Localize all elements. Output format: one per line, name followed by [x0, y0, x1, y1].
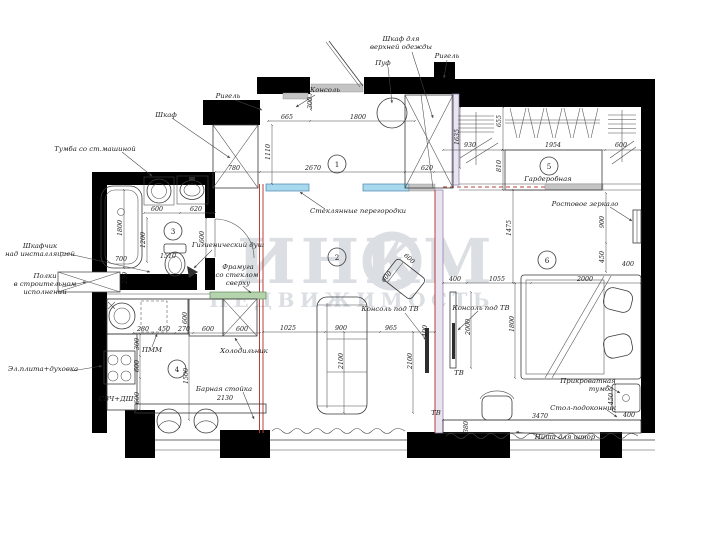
dim: 1055	[489, 276, 505, 283]
curtain-line-living	[272, 429, 405, 434]
label-tv-bedroom: ТВ	[454, 369, 464, 377]
dim: 900	[599, 216, 606, 228]
dim: 600	[615, 142, 627, 149]
dim: 810	[496, 160, 503, 172]
dim: 300	[134, 338, 141, 350]
label-bedside-line1: Прикроватная	[559, 377, 616, 385]
windowsill-desk	[443, 420, 641, 433]
tv-bedroom	[452, 323, 455, 359]
hall-closet-left	[213, 125, 258, 188]
dim: 230	[122, 272, 129, 285]
label-outerwear-closet-line1: Шкаф для	[382, 35, 420, 43]
label-transom-line1: Фрамуга	[222, 263, 254, 271]
dim: 400	[448, 276, 461, 283]
dim: 450	[157, 326, 170, 333]
room-number-5: 5	[540, 157, 558, 175]
glass-partition-right	[363, 184, 409, 191]
dim: 270	[177, 326, 190, 333]
floor-plan-page: ИНК М НЕДВИЖИМОСТЬ	[0, 0, 701, 540]
dim: 1800	[350, 114, 366, 121]
full-length-mirror	[633, 210, 641, 243]
label-rigel-left: Ригель	[215, 92, 241, 100]
dim: 1475	[506, 220, 513, 236]
label-wardrobe-room: Гардеробная	[523, 175, 572, 183]
label-shelves-line3: исполнении	[23, 288, 66, 296]
dim: 1200	[140, 232, 147, 248]
dim: 1025	[280, 325, 296, 332]
dim: 1500	[183, 368, 190, 384]
label-transom-line2: со стеклом	[215, 271, 258, 279]
dim: 2100	[407, 353, 414, 370]
label-shelves-line2: в строительном	[14, 280, 77, 288]
dim: 700	[115, 256, 127, 263]
bathroom-nook-wall	[107, 292, 266, 299]
dim: 930	[464, 142, 476, 149]
room-number-3: 3	[164, 222, 182, 240]
doorway-sill	[409, 184, 435, 191]
label-pouf: Пуф	[374, 59, 391, 67]
dim: 600	[151, 206, 163, 213]
dim: 400	[422, 325, 429, 338]
dim: 380	[463, 421, 470, 433]
dim: 1110	[265, 144, 272, 160]
dim: 655	[496, 115, 503, 127]
outerwear-closet	[405, 95, 453, 188]
pillow	[602, 332, 634, 359]
dim: 2000	[576, 276, 593, 283]
dim: 900	[335, 325, 347, 332]
svg-text:6: 6	[545, 256, 550, 265]
svg-text:5: 5	[547, 162, 552, 171]
dim: 3470	[532, 413, 548, 420]
bedside-table	[612, 384, 640, 412]
dim: 600	[134, 392, 141, 404]
dim: 450	[599, 251, 606, 264]
dim: 1510	[160, 253, 176, 260]
label-wallcabinet-line1: Шкафчик	[22, 242, 58, 250]
floor-plan-drawing: ИНК М НЕДВИЖИМОСТЬ	[0, 0, 701, 540]
dim: 780	[228, 165, 240, 172]
label-bedside-line2: тумба	[589, 385, 614, 393]
room-number-6: 6	[538, 251, 556, 269]
label-tv-console-living: Консоль под ТВ	[360, 305, 418, 313]
label-rigel-right: Ригель	[434, 52, 460, 60]
dim: 620	[190, 206, 202, 213]
label-glass-partitions: Стеклянные перегородки	[310, 207, 406, 215]
dim: 2130	[216, 395, 233, 402]
label-outerwear-closet-line2: верхней одежды	[370, 43, 432, 51]
label-wallcabinet-line2: над инсталляцией	[5, 250, 75, 258]
entry-console	[283, 93, 308, 99]
wardrobe-bedroom-divider	[443, 184, 641, 190]
label-fridge: Холодильник	[219, 347, 269, 355]
svg-text:1: 1	[335, 160, 340, 169]
glass-partition-left	[266, 184, 309, 191]
svg-text:2: 2	[335, 253, 340, 262]
label-microwave: СВЧ+ДШ	[99, 395, 134, 403]
label-tv-console-bedroom: Консоль под ТВ	[451, 304, 509, 312]
dim: 965	[385, 325, 397, 332]
dim: 2670	[304, 165, 321, 172]
label-curtain-niche: Ниша для штор	[534, 433, 596, 441]
label-washer-cabinet: Тумба со ст.машиной	[54, 145, 136, 153]
label-console: Консоль	[309, 86, 340, 94]
dim: 665	[281, 114, 293, 121]
label-shelves-line1: Полки	[32, 272, 56, 280]
label-dishwasher: ПММ	[141, 346, 163, 354]
label-tv-living: ТВ	[431, 409, 441, 417]
dim: 1635	[454, 129, 461, 145]
dim: 620	[421, 165, 433, 172]
transom-glass	[210, 292, 266, 299]
label-windowsill-desk: Стол-подоконник	[550, 404, 617, 412]
dim: 280	[136, 326, 149, 333]
dim: 600	[202, 326, 214, 333]
label-mirror: Ростовое зеркало	[551, 200, 619, 208]
dim: 600	[236, 326, 248, 333]
label-stove-oven: Эл.плита+духовка	[8, 365, 78, 373]
stove	[104, 351, 135, 384]
room-number-1: 1	[328, 155, 346, 173]
dim: 600	[182, 312, 189, 324]
label-closet: Шкаф	[154, 111, 177, 119]
entry-door	[326, 41, 363, 87]
svg-text:3: 3	[171, 227, 176, 236]
wardrobe-rails	[458, 108, 636, 165]
dim: 1800	[117, 220, 124, 236]
tv-partition-wall	[435, 190, 443, 433]
bed	[521, 275, 641, 379]
dim: 600	[199, 231, 206, 243]
label-transom-line3: сверху	[226, 279, 250, 287]
dim: 300	[307, 97, 314, 109]
dim: 1800	[509, 316, 516, 332]
bathtub-drain	[118, 209, 125, 216]
pillow	[602, 286, 634, 314]
dim: 400	[622, 412, 635, 419]
dim: 600	[134, 360, 141, 372]
dim: 2100	[338, 353, 345, 370]
dim: 1954	[545, 142, 561, 149]
desk-chair	[480, 391, 514, 420]
dim: 2000	[465, 319, 472, 336]
dim: 450	[608, 393, 615, 406]
label-bar-counter: Барная стойка	[195, 385, 252, 393]
toilet	[164, 244, 186, 276]
dim: 400	[621, 261, 634, 268]
svg-text:4: 4	[175, 365, 180, 374]
